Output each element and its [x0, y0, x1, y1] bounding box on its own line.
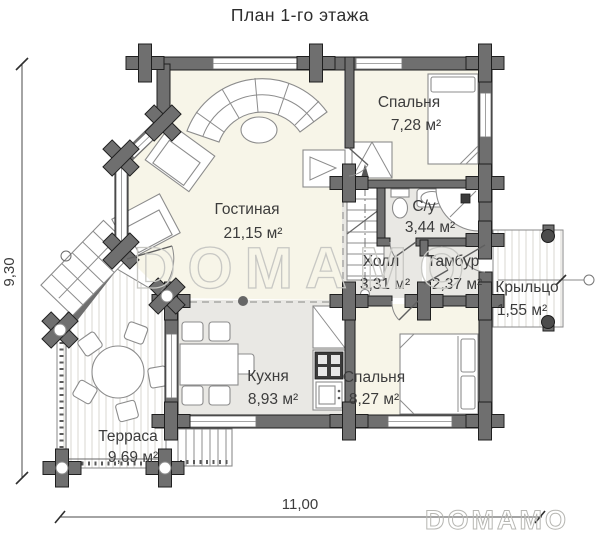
wardrobe-bedroom1 [352, 142, 392, 178]
window-living-top [213, 58, 297, 69]
coffee-table [241, 117, 277, 143]
label-bedroom2-name: Спальня [343, 369, 405, 386]
kitchen-appliances [313, 306, 345, 410]
window-kitchen-left [166, 334, 177, 398]
label-terrace-area: 9,69 м² [108, 449, 158, 466]
window-living-left [116, 164, 127, 246]
steps-south [178, 429, 232, 466]
dimension-width-label: 11,00 [282, 496, 318, 513]
window-bedroom1-top [356, 58, 402, 69]
window-bedroom2-bottom [388, 416, 452, 427]
terrace-table [92, 346, 144, 398]
label-porch-name: Крыльцо [495, 279, 558, 296]
window-kitchen-bottom [186, 416, 256, 427]
label-kitchen-area: 8,93 м² [248, 391, 298, 408]
watermark-center: DOMAMO [134, 236, 477, 301]
label-bedroom1-name: Спальня [378, 94, 440, 111]
dimension-height-label: 9,30 [1, 257, 18, 286]
label-terrace-name: Терраса [98, 428, 158, 445]
toilet [391, 189, 409, 218]
label-bedroom1-area: 7,28 м² [391, 117, 441, 134]
label-porch-area: 1,55 м² [497, 302, 547, 319]
floor-plan-page: Спальня 7,28 м² Гостиная 21,15 м² С/у 3,… [0, 0, 600, 543]
floor-plan-drawing: Спальня 7,28 м² Гостиная 21,15 м² С/у 3,… [0, 0, 600, 543]
page-title: План 1-го этажа [231, 5, 369, 25]
label-living-name: Гостиная [214, 201, 279, 218]
label-bedroom2-area: 8,27 м² [349, 391, 399, 408]
kitchen-table [180, 344, 238, 385]
label-bathroom-name: С/у [412, 198, 436, 215]
label-kitchen-name: Кухня [247, 368, 288, 385]
watermark-corner: DOMAMO [425, 505, 569, 535]
dimension-left: 9,30 [1, 58, 28, 484]
label-bathroom-area: 3,44 м² [405, 219, 455, 236]
window-bedroom1-right [480, 93, 491, 137]
bed-bedroom2 [400, 334, 478, 414]
